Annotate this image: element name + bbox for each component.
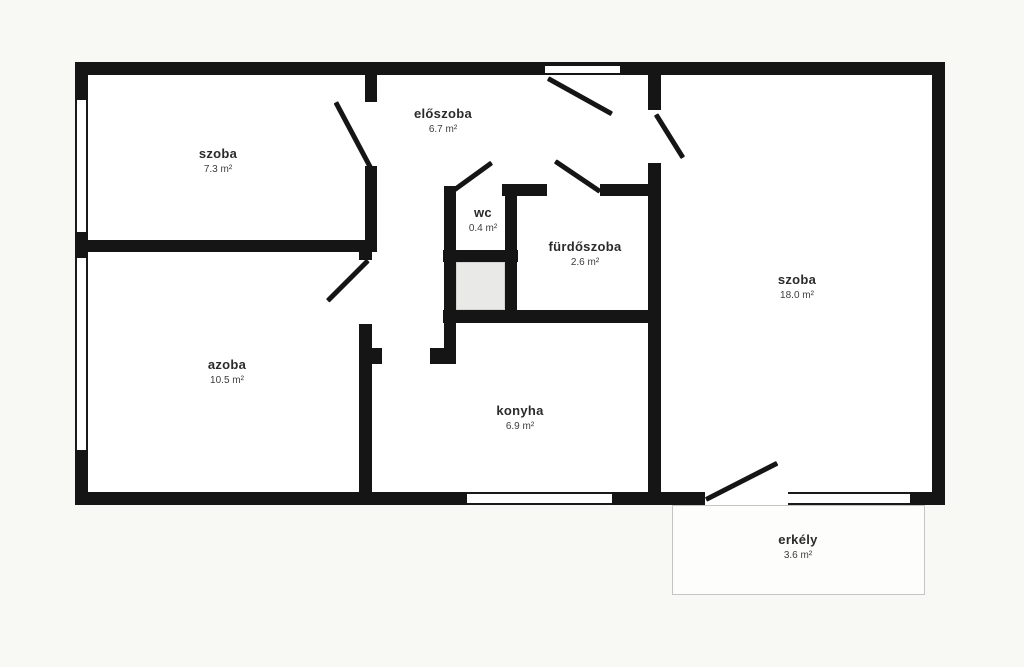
wall-wc-furdo-divider <box>505 188 517 322</box>
window-left-upper <box>75 100 88 232</box>
room-label-wc: wc 0.4 m² <box>469 205 497 234</box>
room-name: szoba <box>199 146 237 161</box>
wall-outer-right <box>932 62 945 505</box>
wall-szoba-divider-lower <box>648 163 661 492</box>
room-area: 18.0 m² <box>778 290 816 301</box>
wall-azoba-corner <box>359 240 372 260</box>
wall-szoba-divider-top <box>648 75 661 110</box>
room-area: 2.6 m² <box>548 257 621 268</box>
room-area: 6.7 m² <box>414 124 472 135</box>
room-area: 10.5 m² <box>208 375 246 386</box>
wall-furdo-top-right <box>600 184 648 196</box>
window-left-lower <box>75 258 88 450</box>
room-name: wc <box>469 205 497 220</box>
room-name: fürdőszoba <box>548 239 621 254</box>
wall-konyha-door-jamb-right <box>430 348 456 364</box>
room-label-konyha: konyha 6.9 m² <box>496 403 543 432</box>
window-szoba-right <box>788 492 910 505</box>
floor-plan: szoba 7.3 m² előszoba 6.7 m² wc 0.4 m² f… <box>0 0 1024 667</box>
room-area: 3.6 m² <box>778 550 817 561</box>
room-area: 0.4 m² <box>469 223 497 234</box>
shaft <box>456 262 505 310</box>
room-label-erkely: erkély 3.6 m² <box>778 532 817 561</box>
room-name: azoba <box>208 357 246 372</box>
window-konyha <box>467 492 612 505</box>
entrance-door <box>543 64 622 75</box>
room-area: 7.3 m² <box>199 164 237 175</box>
room-name: szoba <box>778 272 816 287</box>
room-label-azoba: azoba 10.5 m² <box>208 357 246 386</box>
room-name: konyha <box>496 403 543 418</box>
wall-wc-left <box>444 186 456 364</box>
room-name: erkély <box>778 532 817 547</box>
room-area: 6.9 m² <box>496 421 543 432</box>
wall-eloszoba-szoba-upper <box>365 75 377 102</box>
wall-outer-top <box>75 62 945 75</box>
wall-szoba-azoba <box>88 240 372 252</box>
room-name: előszoba <box>414 106 472 121</box>
room-label-eloszoba: előszoba 6.7 m² <box>414 106 472 135</box>
wall-konyha-door-jamb-left <box>366 348 382 364</box>
room-label-szoba-right: szoba 18.0 m² <box>778 272 816 301</box>
wall-furdo-top-left <box>502 184 547 196</box>
wall-furdo-bottom <box>443 310 661 323</box>
room-label-furdoszoba: fürdőszoba 2.6 m² <box>548 239 621 268</box>
room-label-szoba-top: szoba 7.3 m² <box>199 146 237 175</box>
